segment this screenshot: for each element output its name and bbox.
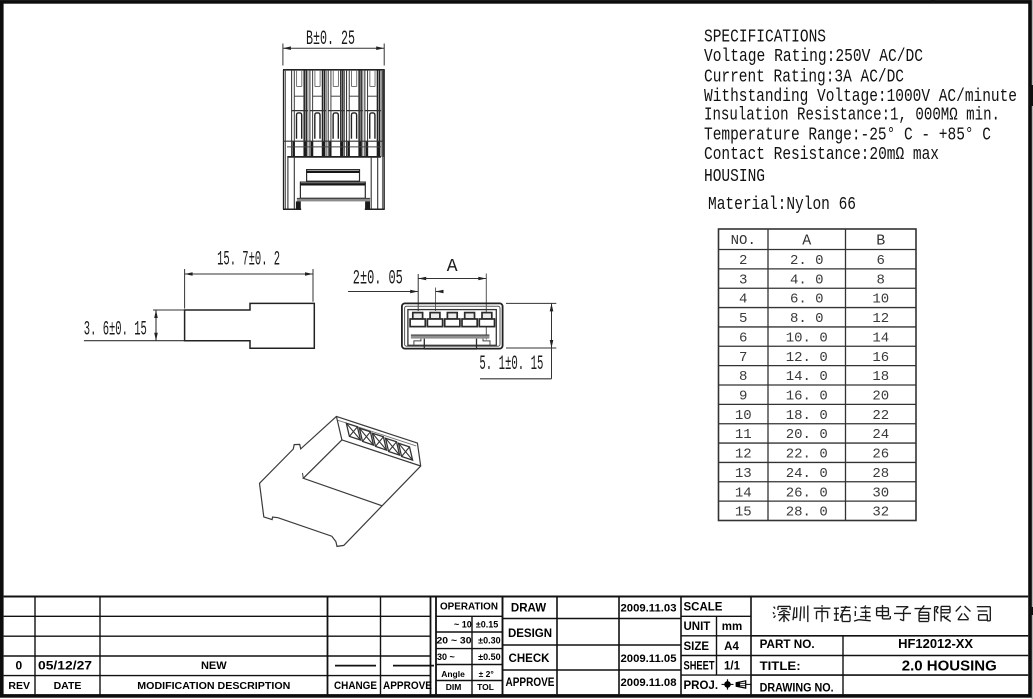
svg-text:SCALE: SCALE (684, 602, 723, 614)
svg-text:Temperature Range:-25° C - +85: Temperature Range:-25° C - +85° C (704, 126, 991, 146)
svg-text:11: 11 (735, 427, 752, 443)
svg-text:24. 0: 24. 0 (786, 466, 828, 482)
svg-text:5: 5 (739, 311, 747, 327)
svg-text:8. 0: 8. 0 (790, 311, 824, 327)
svg-text:Current Rating:3A AC/DC: Current Rating:3A AC/DC (704, 68, 904, 88)
svg-text:±0.15: ±0.15 (476, 619, 498, 629)
svg-text:10: 10 (872, 292, 889, 308)
svg-text:3: 3 (739, 272, 747, 288)
svg-text:26. 0: 26. 0 (786, 485, 828, 501)
svg-text:REV: REV (8, 680, 30, 692)
svg-text:A: A (802, 233, 811, 250)
svg-text:26: 26 (872, 447, 889, 463)
svg-text:20. 0: 20. 0 (786, 427, 828, 443)
svg-text:NO.: NO. (731, 233, 756, 249)
svg-text:UNIT: UNIT (684, 621, 711, 633)
svg-text:2009.11.05: 2009.11.05 (621, 653, 677, 665)
svg-text:5. 1±0. 15: 5. 1±0. 15 (479, 353, 543, 376)
svg-text:15: 15 (735, 505, 752, 521)
svg-text:22. 0: 22. 0 (786, 447, 828, 463)
svg-text:13: 13 (735, 466, 752, 482)
svg-text:32: 32 (872, 505, 889, 521)
svg-text:10: 10 (735, 408, 752, 424)
svg-text:3. 6±0. 15: 3. 6±0. 15 (84, 319, 147, 342)
svg-text:16. 0: 16. 0 (786, 388, 828, 404)
svg-text:±0.50: ±0.50 (478, 652, 500, 662)
svg-text:12: 12 (872, 311, 889, 327)
svg-text:SHEET: SHEET (684, 661, 715, 673)
svg-text:2009.11.03: 2009.11.03 (621, 603, 677, 615)
svg-text:18. 0: 18. 0 (786, 408, 828, 424)
svg-text:4. 0: 4. 0 (790, 272, 824, 288)
svg-text:20 ~ 30: 20 ~ 30 (437, 636, 472, 646)
svg-text:12: 12 (735, 447, 752, 463)
svg-text:2.0 HOUSING: 2.0 HOUSING (902, 658, 997, 674)
svg-text:±0.30: ±0.30 (478, 636, 500, 646)
svg-text:20: 20 (872, 388, 889, 404)
svg-text:28: 28 (872, 466, 889, 482)
svg-text:2: 2 (739, 253, 747, 269)
svg-text:DRAW: DRAW (511, 603, 546, 615)
svg-text:HF12012-XX: HF12012-XX (898, 636, 973, 651)
svg-text:DIM: DIM (446, 682, 462, 692)
svg-text:30 ~: 30 ~ (437, 652, 455, 662)
svg-text:A: A (447, 257, 458, 277)
svg-text:8: 8 (877, 272, 885, 288)
svg-text:PROJ.: PROJ. (684, 680, 719, 692)
svg-text:NEW: NEW (201, 660, 227, 672)
svg-text:Angle: Angle (441, 669, 465, 679)
svg-text:OPERATION: OPERATION (440, 601, 498, 613)
svg-text:14. 0: 14. 0 (786, 369, 828, 385)
svg-text:APPROVE: APPROVE (383, 680, 432, 692)
svg-text:7: 7 (739, 350, 747, 366)
svg-text:DESIGN: DESIGN (508, 628, 552, 640)
svg-text:mm: mm (722, 621, 742, 633)
svg-text:6. 0: 6. 0 (790, 292, 824, 308)
svg-text:MODIFICATION DESCRIPTION: MODIFICATION DESCRIPTION (137, 680, 290, 692)
svg-text:CHECK: CHECK (509, 653, 551, 665)
svg-text:8: 8 (739, 369, 747, 385)
svg-text:DRAWING NO.: DRAWING NO. (760, 680, 834, 694)
svg-text:14: 14 (872, 330, 889, 346)
svg-text:6: 6 (739, 330, 747, 346)
svg-text:30: 30 (872, 485, 889, 501)
svg-text:28. 0: 28. 0 (786, 505, 828, 521)
svg-text:DATE: DATE (54, 680, 82, 692)
svg-text:9: 9 (739, 388, 747, 404)
svg-text:15. 7±0. 2: 15. 7±0. 2 (217, 249, 280, 272)
svg-text:HOUSING: HOUSING (704, 167, 765, 187)
svg-text:A4: A4 (724, 641, 739, 653)
svg-text:22: 22 (872, 408, 889, 424)
svg-text:Contact Resistance:20mΩ max: Contact Resistance:20mΩ max (704, 145, 939, 165)
svg-text:Withstanding Voltage:1000V AC/: Withstanding Voltage:1000V AC/minute (704, 87, 1017, 107)
svg-text:2009.11.08: 2009.11.08 (621, 677, 677, 689)
svg-text:CHANGE: CHANGE (334, 680, 377, 692)
svg-text:2. 0: 2. 0 (790, 253, 824, 269)
svg-text:TITLE:: TITLE: (760, 659, 801, 673)
svg-text:B±0. 25: B±0. 25 (306, 28, 355, 51)
svg-text:Voltage Rating:250V AC/DC: Voltage Rating:250V AC/DC (704, 47, 923, 67)
svg-text:6: 6 (877, 253, 885, 269)
svg-text:± 2°: ± 2° (479, 669, 495, 679)
svg-text:14: 14 (735, 485, 752, 501)
svg-text:2±0. 05: 2±0. 05 (353, 268, 403, 291)
svg-text:18: 18 (872, 369, 889, 385)
svg-text:16: 16 (872, 350, 889, 366)
svg-text:~ 10: ~ 10 (454, 619, 472, 629)
svg-text:Insulation Resistance:1, 000MΩ: Insulation Resistance:1, 000MΩ min. (704, 106, 1000, 126)
svg-text:12. 0: 12. 0 (786, 350, 828, 366)
svg-text:24: 24 (872, 427, 889, 443)
svg-text:0: 0 (16, 658, 23, 672)
svg-text:TOL: TOL (477, 682, 494, 692)
svg-text:APPROVE: APPROVE (506, 677, 555, 689)
svg-text:1/1: 1/1 (724, 661, 741, 673)
svg-text:PART NO.: PART NO. (760, 637, 815, 651)
svg-text:10. 0: 10. 0 (786, 330, 828, 346)
svg-text:05/12/27: 05/12/27 (38, 659, 92, 673)
svg-text:Material:Nylon 66: Material:Nylon 66 (708, 195, 856, 215)
svg-text:B: B (876, 233, 885, 250)
svg-text:SPECIFICATIONS: SPECIFICATIONS (704, 28, 826, 48)
svg-text:SIZE: SIZE (684, 641, 710, 653)
svg-text:4: 4 (739, 292, 747, 308)
